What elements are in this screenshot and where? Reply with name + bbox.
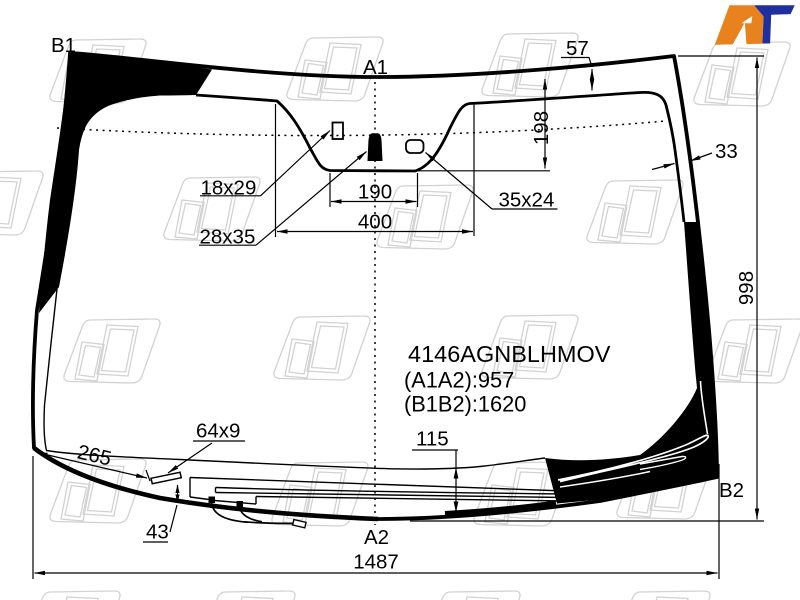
svg-text:1487: 1487 — [353, 551, 399, 574]
svg-text:57: 57 — [566, 37, 589, 60]
svg-text:998: 998 — [735, 271, 758, 305]
svg-text:B2: B2 — [719, 479, 744, 502]
svg-text:A2: A2 — [364, 526, 389, 549]
svg-text:B1: B1 — [51, 34, 76, 57]
svg-text:(B1B2):1620: (B1B2):1620 — [404, 392, 526, 417]
svg-text:190: 190 — [358, 181, 392, 204]
svg-text:43: 43 — [146, 521, 169, 544]
svg-text:64x9: 64x9 — [196, 420, 240, 443]
svg-text:33: 33 — [715, 140, 738, 163]
svg-text:198: 198 — [530, 111, 553, 145]
svg-text:4146AGNBLHMOV: 4146AGNBLHMOV — [408, 341, 611, 367]
svg-text:400: 400 — [358, 211, 392, 234]
svg-text:35x24: 35x24 — [499, 189, 555, 212]
svg-text:(A1A2):957: (A1A2):957 — [404, 368, 514, 393]
svg-text:A1: A1 — [363, 56, 388, 79]
svg-text:115: 115 — [416, 428, 449, 451]
